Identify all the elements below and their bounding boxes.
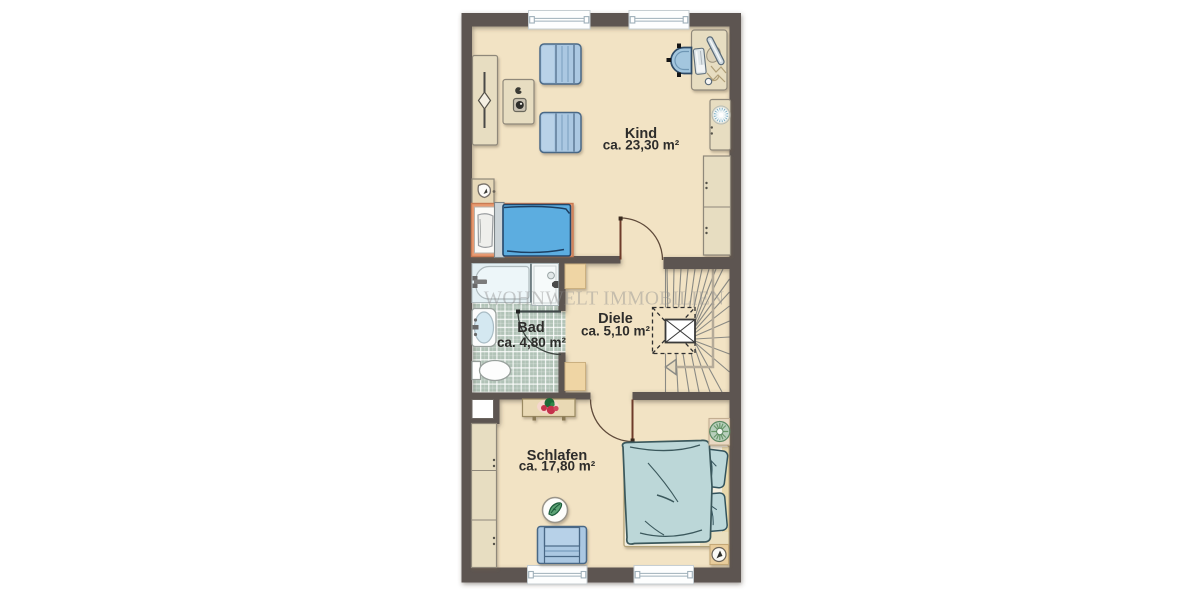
svg-text:ca. 5,10 m²: ca. 5,10 m²: [581, 324, 651, 339]
svg-text:ca. 23,30 m²: ca. 23,30 m²: [603, 138, 680, 153]
svg-text:WOHNWELT IMMOBILIEN: WOHNWELT IMMOBILIEN: [484, 289, 724, 310]
svg-text:ca. 4,80 m²: ca. 4,80 m²: [497, 335, 567, 350]
svg-text:ca. 17,80 m²: ca. 17,80 m²: [519, 459, 596, 474]
svg-text:Bad: Bad: [517, 320, 544, 336]
